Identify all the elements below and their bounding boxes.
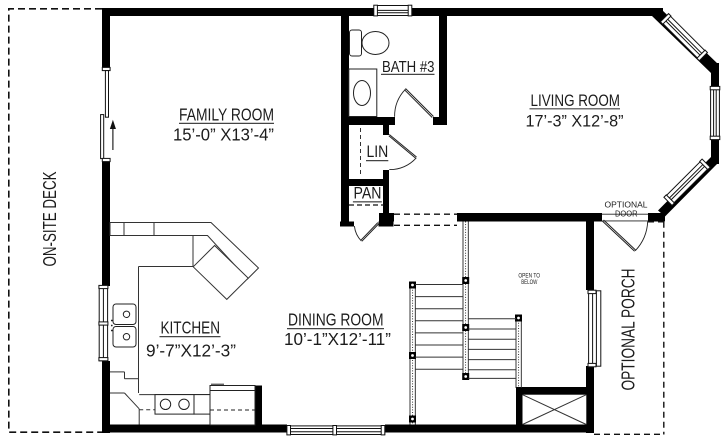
svg-text:10’-1”X12’-11”: 10’-1”X12’-11”: [284, 329, 391, 349]
svg-text:LIN: LIN: [367, 142, 389, 161]
svg-text:9’-7”X12’-3”: 9’-7”X12’-3”: [146, 340, 236, 360]
svg-text:PAN: PAN: [354, 183, 382, 202]
svg-text:BELOW: BELOW: [521, 279, 537, 286]
svg-text:LIVING ROOM: LIVING ROOM: [531, 91, 621, 110]
svg-text:15’-0” X13’-4”: 15’-0” X13’-4”: [173, 125, 274, 145]
svg-text:OPTIONAL PORCH: OPTIONAL PORCH: [619, 269, 639, 391]
svg-text:KITCHEN: KITCHEN: [161, 317, 221, 337]
svg-text:BATH #3: BATH #3: [382, 59, 435, 76]
svg-text:ON-SITE DECK: ON-SITE DECK: [40, 172, 60, 267]
svg-text:DINING ROOM: DINING ROOM: [288, 310, 384, 330]
svg-text:DOOR: DOOR: [615, 208, 638, 218]
svg-text:17’-3” X12’-8”: 17’-3” X12’-8”: [526, 112, 624, 131]
svg-text:FAMILY ROOM: FAMILY ROOM: [179, 105, 274, 125]
